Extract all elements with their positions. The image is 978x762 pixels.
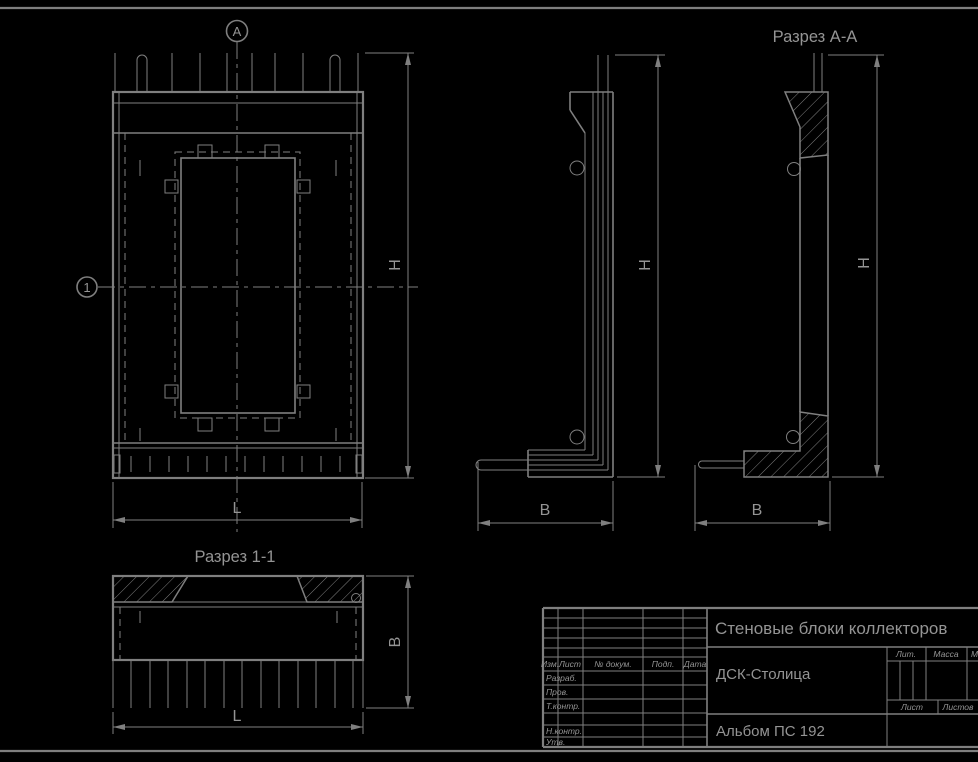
s11-b-dimension: B (366, 576, 414, 708)
front-h-dimension: H (365, 53, 414, 478)
aa-hook-upper (788, 163, 801, 176)
aa-hook-lower (787, 431, 800, 444)
title-block: Изм. Лист № докум. Подп. Дата Разраб. Пр… (541, 608, 978, 747)
aa-top-block-hatched (785, 92, 828, 158)
title-block-right-labels: Лит. Масса Масштаб Лист Листов (895, 649, 978, 712)
col-doc: № докум. (594, 659, 631, 669)
title-block-header-labels: Изм. Лист № докум. Подп. Дата Разраб. Пр… (541, 659, 707, 747)
aa-b-label: B (752, 502, 763, 519)
section-11-title: Разрез 1-1 (194, 548, 275, 566)
col-list: Лист (558, 659, 581, 669)
col-massa: Масса (933, 649, 958, 659)
aa-top-dowel (814, 53, 822, 92)
col-izm: Изм. (541, 659, 559, 669)
col-list2: Лист (900, 702, 923, 712)
col-masshtab: Масштаб (971, 649, 978, 659)
s11-b-label: B (387, 637, 404, 648)
col-lit: Лит. (895, 649, 916, 659)
row-tkontr: Т.контр. (546, 701, 580, 711)
front-l-label: L (233, 500, 242, 517)
centerlines (98, 42, 418, 532)
front-view: А 1 (77, 21, 418, 533)
side-view: H B (476, 55, 665, 531)
section-11-view: Разрез 1-1 (113, 548, 414, 734)
side-h-label: H (637, 259, 654, 271)
axis-marker-1: 1 (77, 277, 97, 297)
marker-a-label: А (233, 24, 242, 39)
front-body (113, 92, 363, 478)
section-aa-view: Разрез А-А H B (695, 28, 884, 531)
col-podp: Подп. (652, 659, 675, 669)
row-nkontr: Н.контр. (546, 726, 582, 736)
aa-h-label: H (856, 257, 873, 269)
document-title: Стеновые блоки коллекторов (715, 619, 947, 638)
drawing-sheet: А 1 (0, 0, 978, 762)
section-marker-a: А (227, 21, 248, 42)
cad-canvas: А 1 (0, 0, 978, 762)
side-b-label: B (540, 502, 551, 519)
side-foot (476, 430, 613, 477)
side-top-dowel (598, 55, 608, 92)
aa-wall (800, 155, 828, 416)
aa-foot-hatched (744, 412, 828, 477)
front-h-label: H (387, 259, 404, 271)
side-b-dimension: B (478, 462, 613, 531)
marker-1-label: 1 (83, 280, 90, 295)
s11-l-dimension: L (113, 708, 363, 734)
lifting-hook-lower (570, 430, 584, 444)
hairpin-loop-right (330, 55, 340, 92)
album-number: Альбом ПС 192 (716, 723, 825, 740)
section-aa-title: Разрез А-А (773, 28, 858, 46)
aa-tenon (699, 461, 744, 468)
sheet-frame (0, 8, 978, 751)
lifting-hook-upper (570, 161, 584, 175)
s11-l-label: L (233, 708, 242, 725)
s11-hatch-right (297, 576, 363, 602)
aa-h-dimension: H (828, 55, 884, 477)
row-prov: Пров. (546, 687, 568, 697)
s11-bottom-fringe (113, 660, 363, 708)
col-data: Дата (683, 659, 707, 669)
front-base-ticks (114, 455, 362, 473)
s11-hatch-left (113, 576, 188, 602)
side-wall (570, 92, 613, 477)
side-h-dimension: H (615, 55, 665, 477)
organization-name: ДСК-Столица (716, 666, 811, 683)
col-listov: Листов (942, 702, 975, 712)
hairpin-loop-left (137, 55, 147, 92)
row-razrab: Разраб. (546, 673, 577, 683)
row-utv: Утв. (545, 737, 565, 747)
